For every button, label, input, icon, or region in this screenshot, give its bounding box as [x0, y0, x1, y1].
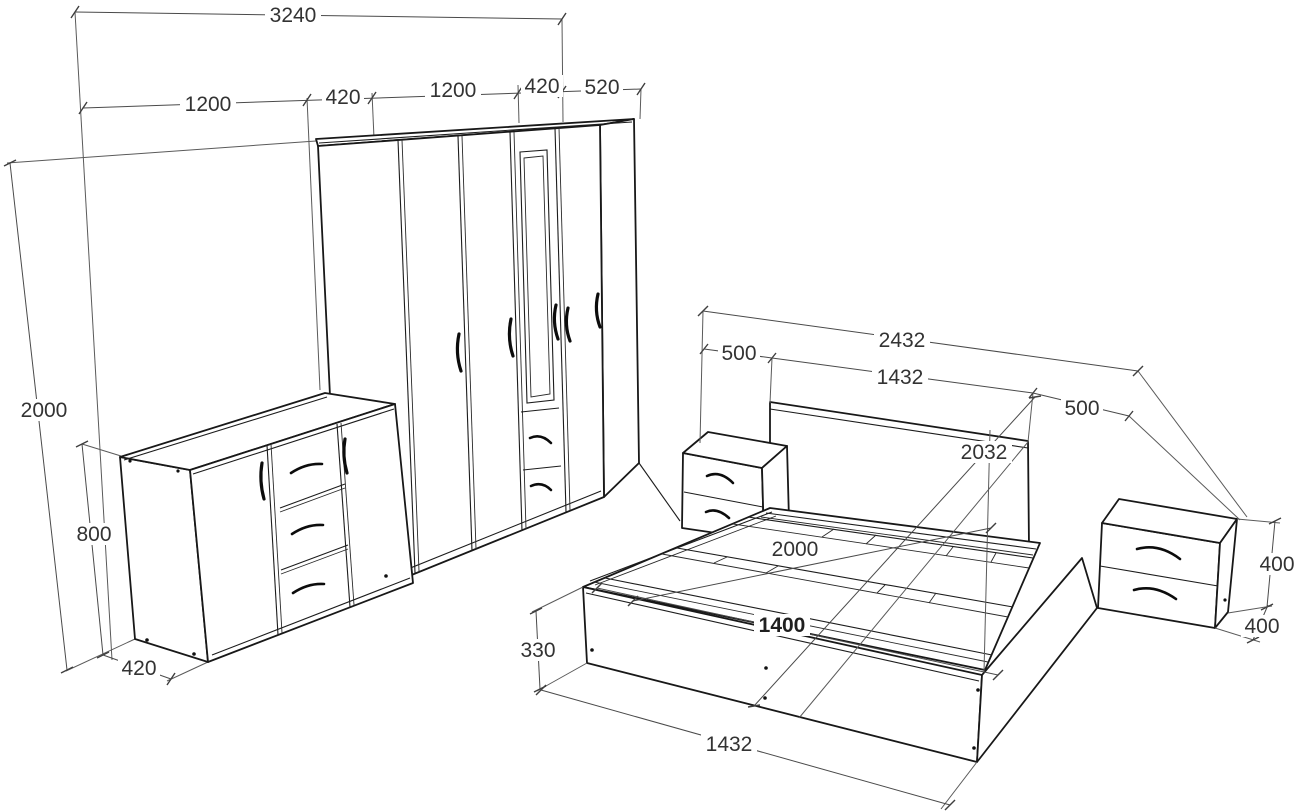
dimension-nightstand-right-width: 500 — [1033, 393, 1133, 421]
dim-label-seg1: 1200 — [185, 93, 232, 116]
dimension-dresser-height: 800 — [73, 441, 115, 658]
dim-label-seg4: 420 — [524, 75, 559, 98]
dim-label-mattress-width: 1400 — [759, 614, 806, 637]
dim-label-wall-total: 3240 — [270, 4, 317, 27]
dimension-nightstand-left-width: 500 — [700, 342, 776, 365]
dimension-wall-total: 3240 — [71, 4, 566, 27]
dimension-wall-segments: 1200 420 1200 420 520 — [79, 75, 645, 116]
technical-drawing: 3240 1200 420 1200 420 520 2000 800 — [0, 0, 1295, 812]
dim-label-nightstand-depth: 400 — [1244, 615, 1279, 638]
dimension-nightstand-depth: 400 — [1241, 605, 1283, 643]
dresser — [120, 393, 413, 662]
dim-label-seg3: 1200 — [430, 79, 477, 102]
dim-label-headboard-width: 1432 — [877, 366, 924, 389]
dim-label-bed-length: 2000 — [772, 538, 819, 561]
dimension-bed-frame-height: 330 — [517, 608, 559, 692]
dim-label-ns-left-width: 500 — [721, 342, 756, 365]
right-nightstand — [1098, 499, 1237, 628]
dimension-wardrobe-height: 2000 — [4, 160, 73, 673]
dim-label-bed-total: 2432 — [879, 329, 926, 352]
dim-label-seg2: 420 — [325, 86, 360, 109]
dim-label-bed-front-width: 1432 — [706, 733, 753, 756]
bed — [583, 402, 1237, 762]
dim-label-nightstand-height: 400 — [1259, 553, 1294, 576]
dimension-dresser-depth: 420 — [103, 655, 175, 685]
dim-label-bed-diagonal: 2032 — [961, 441, 1008, 464]
dim-label-seg5: 520 — [584, 76, 619, 99]
dim-label-frame-height: 330 — [520, 639, 555, 662]
dimension-headboard-width: 1432 — [772, 358, 1037, 398]
dimension-nightstand-height: 400 — [1256, 518, 1295, 610]
dim-label-ns-right-width: 500 — [1064, 397, 1099, 420]
dim-label-dresser-depth: 420 — [121, 657, 156, 680]
dim-label-dresser-height: 800 — [76, 523, 111, 546]
dim-label-wardrobe-height: 2000 — [21, 399, 68, 422]
